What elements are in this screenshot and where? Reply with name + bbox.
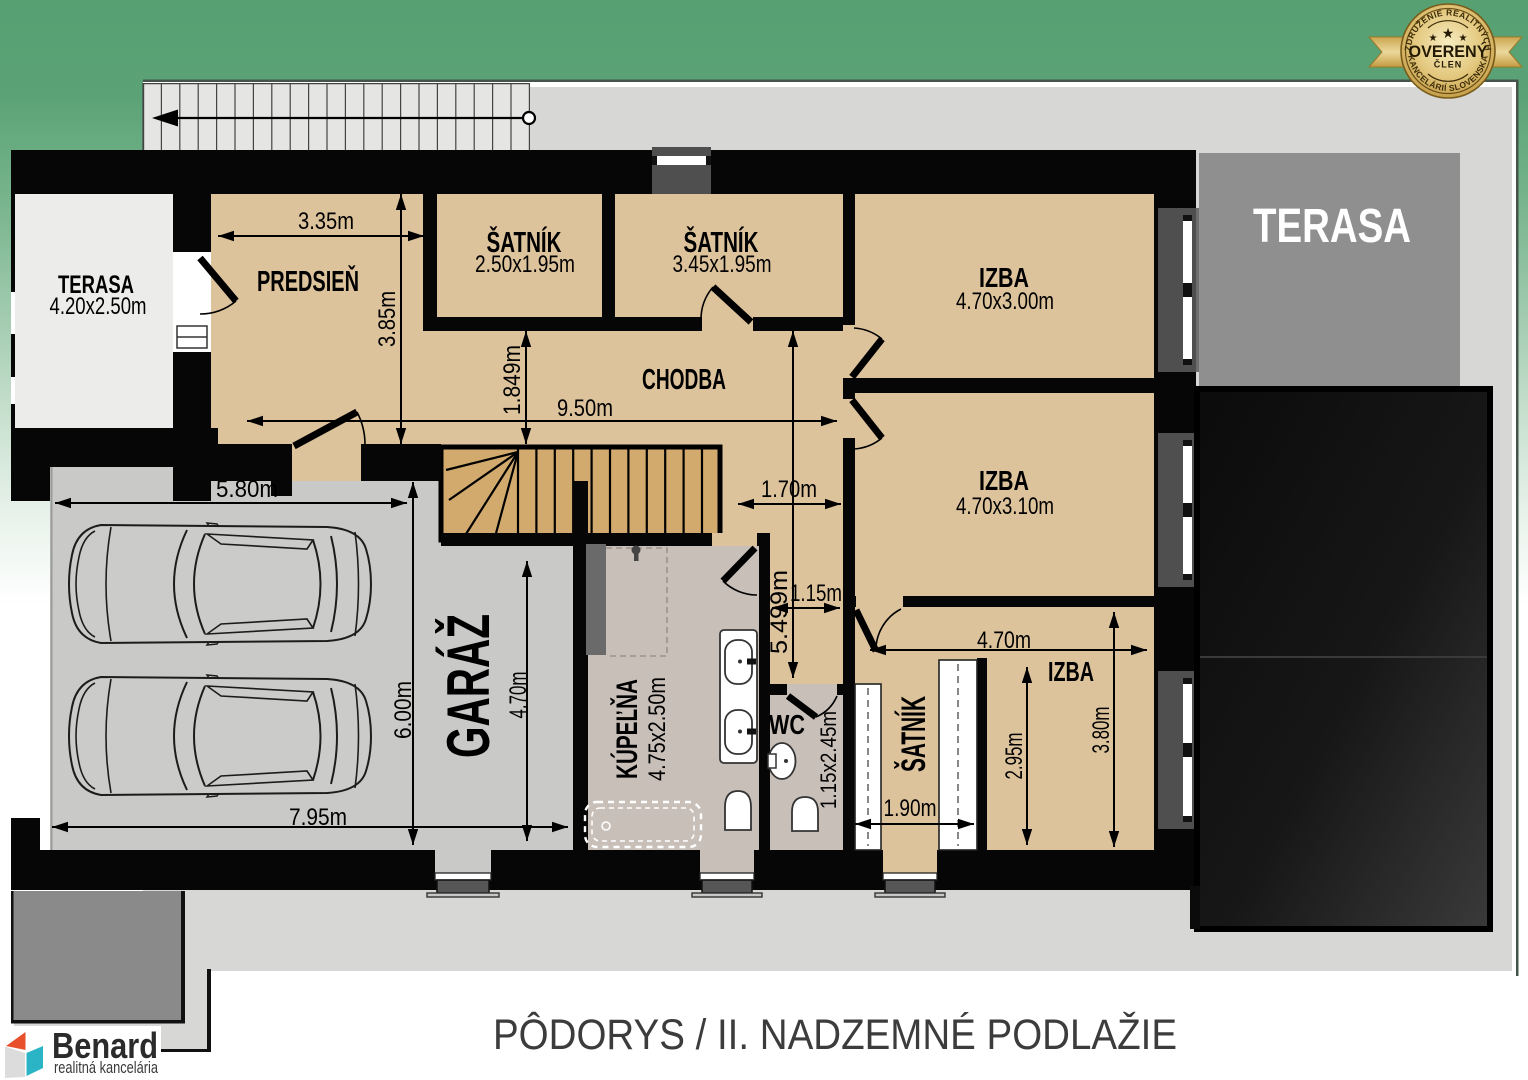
svg-text:★: ★ — [1459, 33, 1468, 44]
svg-text:★: ★ — [1442, 25, 1455, 41]
svg-text:1.15x2.45m: 1.15x2.45m — [816, 711, 841, 809]
svg-text:3.80m: 3.80m — [1088, 707, 1115, 754]
svg-text:GARÁŽ: GARÁŽ — [435, 614, 502, 758]
svg-text:9.50m: 9.50m — [557, 395, 613, 422]
svg-text:ŠATNÍK: ŠATNÍK — [894, 696, 933, 772]
svg-text:2.50x1.95m: 2.50x1.95m — [475, 251, 575, 278]
svg-text:4.20x2.50m: 4.20x2.50m — [50, 293, 147, 320]
svg-text:PREDSIEŇ: PREDSIEŇ — [257, 264, 359, 298]
svg-text:3.45x1.95m: 3.45x1.95m — [673, 251, 772, 278]
svg-text:4.70x3.10m: 4.70x3.10m — [956, 493, 1054, 520]
svg-text:1.70m: 1.70m — [761, 476, 817, 503]
svg-text:CHODBA: CHODBA — [642, 364, 726, 396]
svg-text:3.85m: 3.85m — [374, 291, 401, 347]
svg-text:TERASA: TERASA — [1253, 200, 1411, 253]
svg-text:PÔDORYS / II. NADZEMNÉ PODLAŽI: PÔDORYS / II. NADZEMNÉ PODLAŽIE — [493, 1011, 1177, 1059]
svg-text:3.35m: 3.35m — [298, 208, 354, 235]
svg-text:4.75x2.50m: 4.75x2.50m — [644, 677, 671, 781]
svg-text:5.80m: 5.80m — [216, 476, 278, 503]
svg-text:IZBA: IZBA — [1048, 656, 1094, 687]
svg-text:realitná kancelária: realitná kancelária — [54, 1058, 158, 1077]
svg-text:★: ★ — [1429, 33, 1438, 44]
svg-text:OVERENÝ: OVERENÝ — [1409, 42, 1489, 61]
svg-text:2.95m: 2.95m — [1001, 733, 1028, 780]
svg-text:4.70x3.00m: 4.70x3.00m — [956, 288, 1054, 315]
svg-text:IZBA: IZBA — [979, 465, 1029, 496]
svg-text:1.90m: 1.90m — [884, 795, 937, 822]
svg-text:ČLEN: ČLEN — [1434, 59, 1463, 70]
svg-text:1.15m: 1.15m — [790, 580, 842, 607]
svg-text:5.499m: 5.499m — [766, 570, 793, 654]
svg-text:WC: WC — [769, 709, 805, 740]
svg-text:1.849m: 1.849m — [499, 345, 526, 415]
svg-text:KÚPEĽŇA: KÚPEĽŇA — [610, 679, 644, 779]
